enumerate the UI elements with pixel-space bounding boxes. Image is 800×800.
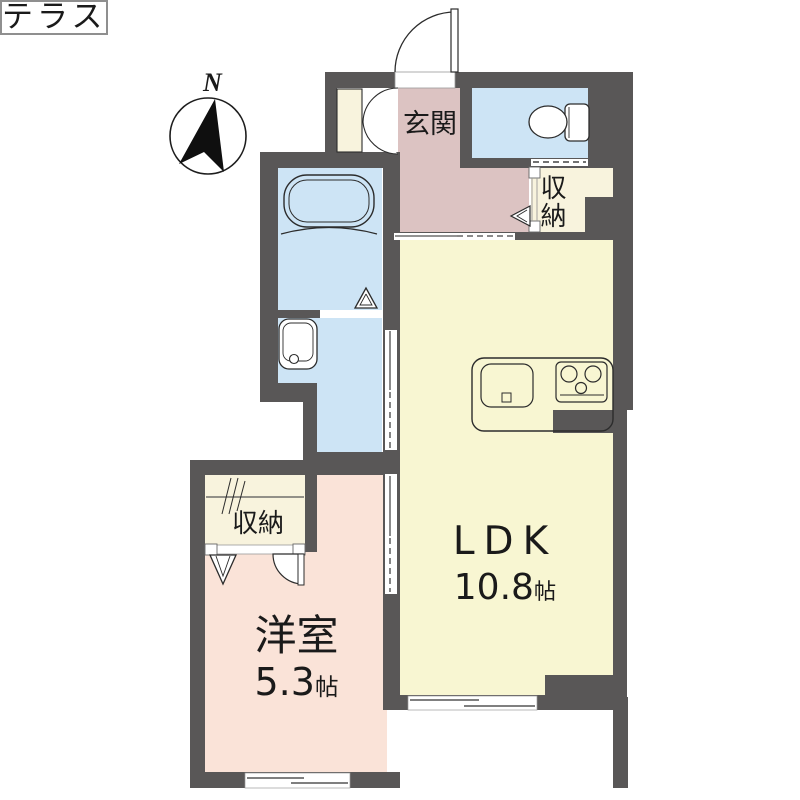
storage-top-label: 収納	[538, 174, 564, 230]
wall	[325, 72, 395, 88]
wall	[260, 310, 322, 318]
room-washroom	[278, 318, 382, 383]
wall	[390, 695, 613, 710]
wall	[455, 72, 633, 88]
compass-north-label: N	[203, 70, 222, 96]
wall	[190, 772, 400, 788]
wall	[588, 88, 613, 158]
room-bathroom	[278, 168, 382, 310]
ldk-size-label: 10.8帖	[420, 570, 590, 606]
wall	[545, 675, 613, 697]
western-size-unit: 帖	[315, 673, 339, 701]
western-size-value: 5.3	[255, 660, 315, 704]
western-label: 洋室	[214, 615, 379, 657]
western-size-label: 5.3帖	[214, 663, 379, 701]
ldk-size-value: 10.8	[454, 567, 534, 608]
wall	[325, 88, 337, 152]
room-ldk	[400, 240, 613, 695]
genkan-label: 玄関	[394, 111, 466, 138]
wall	[190, 460, 400, 475]
terrace-label: テラス	[2, 2, 106, 33]
wall	[553, 410, 627, 433]
ldk-label: LDK	[420, 522, 590, 561]
shoe-cabinet-icon	[337, 88, 398, 154]
entrance-door-icon	[395, 9, 458, 88]
wall	[393, 232, 531, 240]
ldk-size-unit: 帖	[534, 579, 556, 605]
floor-plan: テラス	[0, 0, 800, 800]
wall	[260, 152, 278, 402]
storage-bottom-label: 収納	[208, 511, 308, 537]
wall	[472, 158, 613, 168]
wall	[613, 697, 628, 788]
wall	[260, 152, 400, 168]
wall	[613, 72, 633, 410]
wall	[383, 152, 400, 710]
room-hall	[400, 163, 529, 232]
wall	[613, 433, 627, 697]
room-toilet	[472, 88, 588, 158]
compass-icon	[170, 98, 246, 174]
wall	[190, 460, 205, 788]
wall	[303, 452, 400, 460]
wall	[531, 232, 613, 240]
room-washroom	[317, 383, 382, 452]
room-terrace: テラス	[0, 0, 108, 35]
